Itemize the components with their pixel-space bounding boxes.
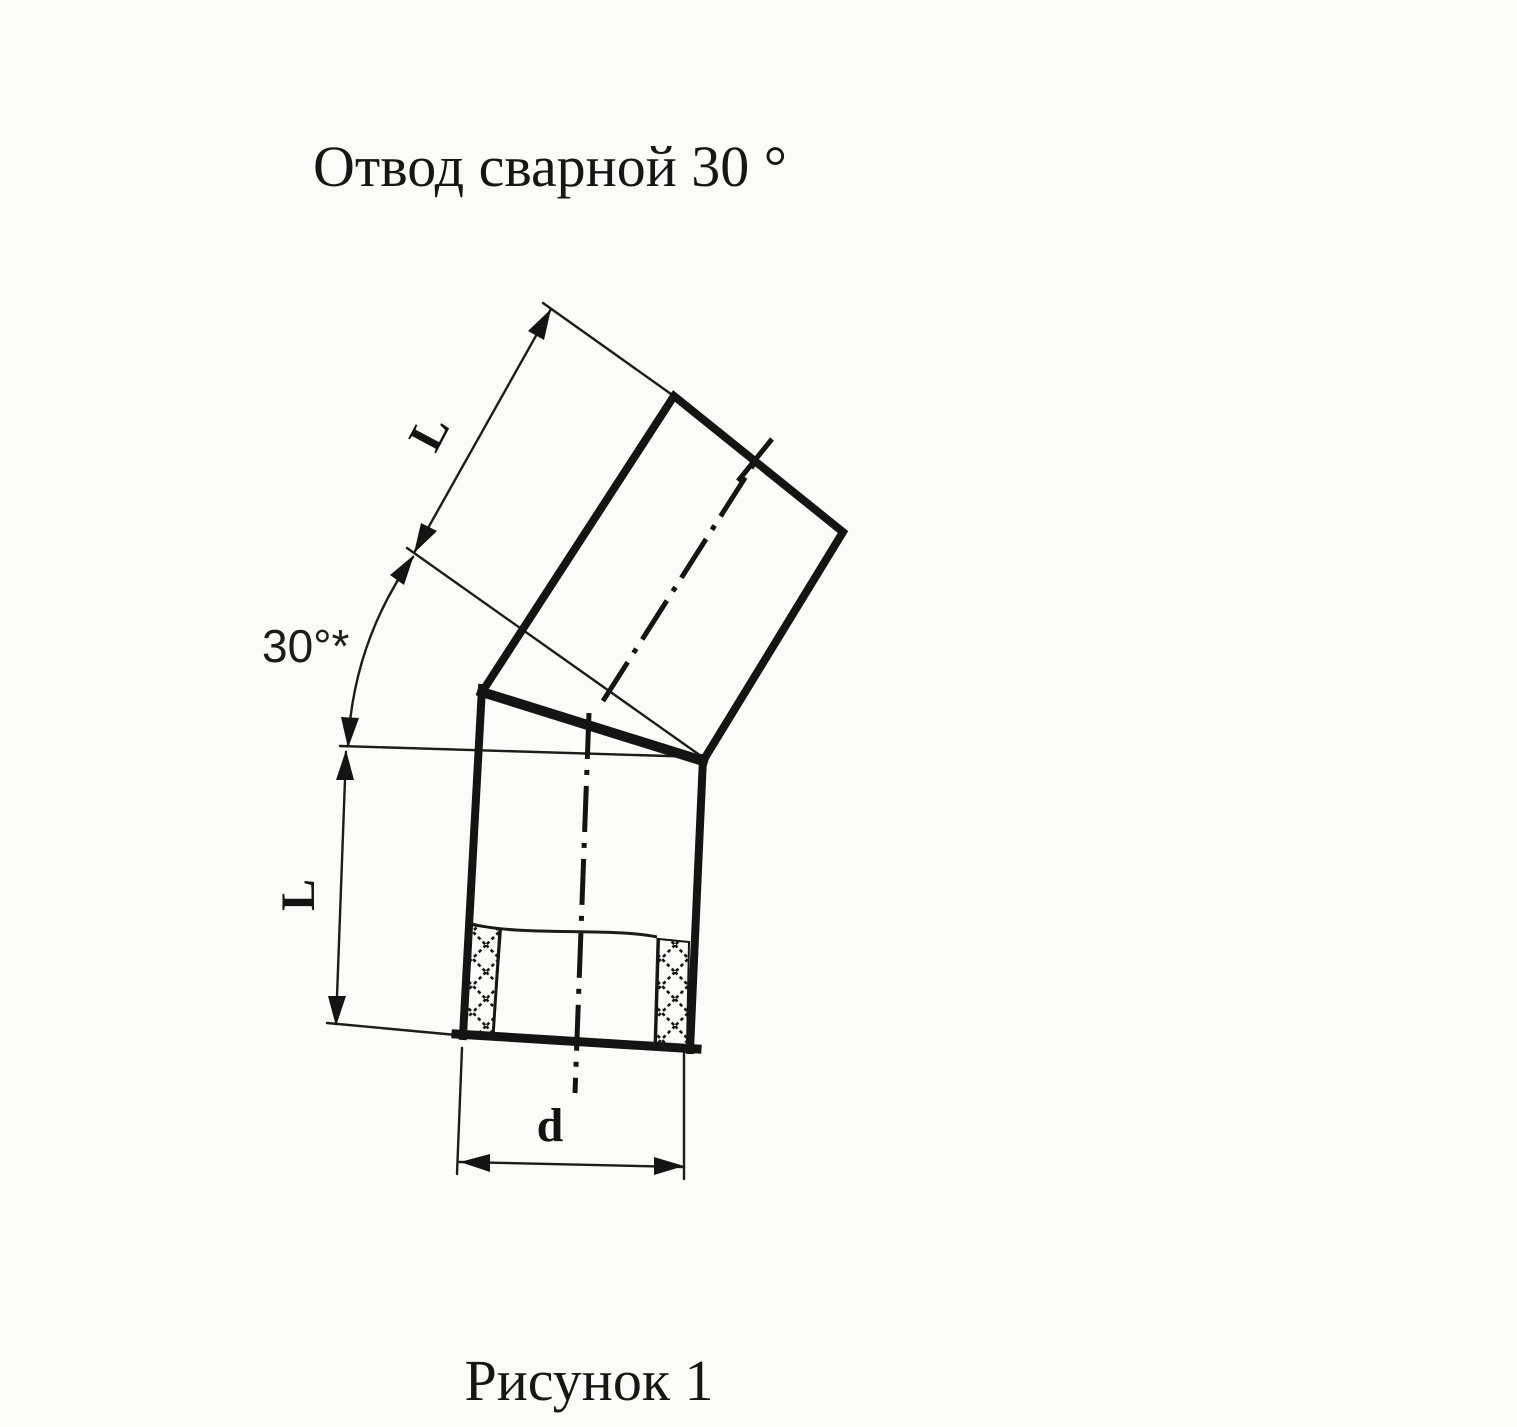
diameter-label: d [537, 1099, 564, 1152]
arrowhead-upper-L-bottom [414, 523, 437, 553]
elbow-technical-drawing: Отвод сварной 30 ° [0, 0, 1517, 1427]
pipe-outline [456, 396, 843, 1050]
angle-arc-30deg [348, 557, 413, 746]
lower-L-label: L [272, 879, 325, 911]
arrowhead-lower-L-bottom [328, 996, 346, 1026]
centerline-upper-segment [603, 459, 757, 701]
centerline-lower-segment [575, 713, 589, 1093]
arrowhead-arc-top [390, 555, 414, 585]
extension-line-d-left [457, 1048, 462, 1174]
arrowhead-d-right [654, 1157, 684, 1175]
upper-L-label: L [398, 406, 460, 459]
dimension-line-lower-L [336, 752, 346, 1024]
extension-line-bottom-face [327, 1023, 467, 1036]
dimension-line-d [459, 1162, 684, 1167]
figure-caption: Рисунок 1 [465, 1348, 714, 1413]
lower-segment-right-edge [690, 758, 703, 1050]
arrowhead-arc-bottom [341, 717, 359, 748]
extension-line-top-edge [543, 303, 678, 399]
arrowhead-upper-L-top [528, 309, 551, 340]
arrowhead-lower-L-top [336, 750, 354, 780]
hatched-wall-right [656, 939, 689, 1046]
angle-label: 30°* [262, 620, 350, 672]
drawing-title: Отвод сварной 30 ° [313, 134, 787, 199]
arrowhead-d-left [460, 1154, 490, 1172]
scanned-drawing-page: Отвод сварной 30 ° [0, 0, 1517, 1427]
